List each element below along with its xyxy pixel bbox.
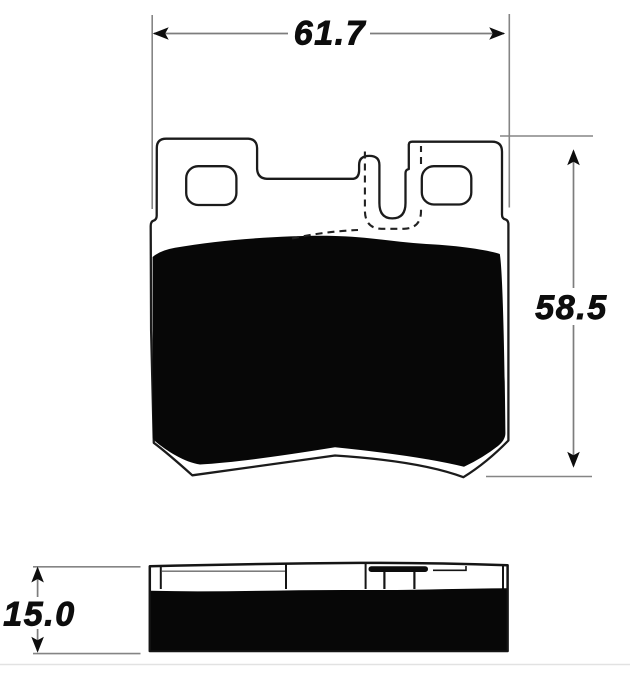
svg-text:61.7: 61.7 <box>294 15 367 53</box>
svg-text:15.0: 15.0 <box>3 595 76 633</box>
svg-text:58.5: 58.5 <box>535 289 608 327</box>
